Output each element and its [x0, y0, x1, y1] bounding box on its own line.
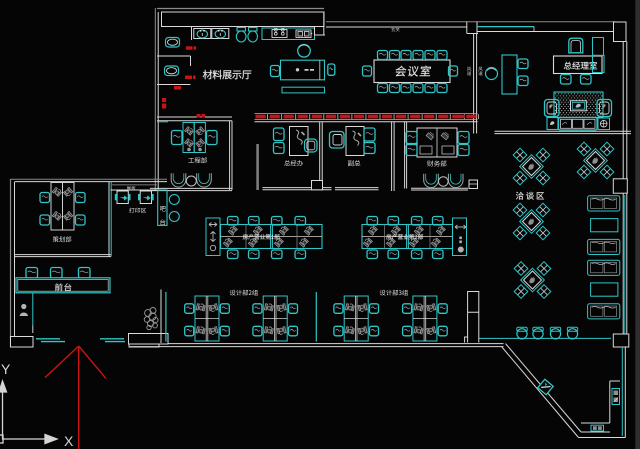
svg-text:X: X	[64, 433, 74, 449]
svg-text:Y: Y	[1, 361, 11, 377]
